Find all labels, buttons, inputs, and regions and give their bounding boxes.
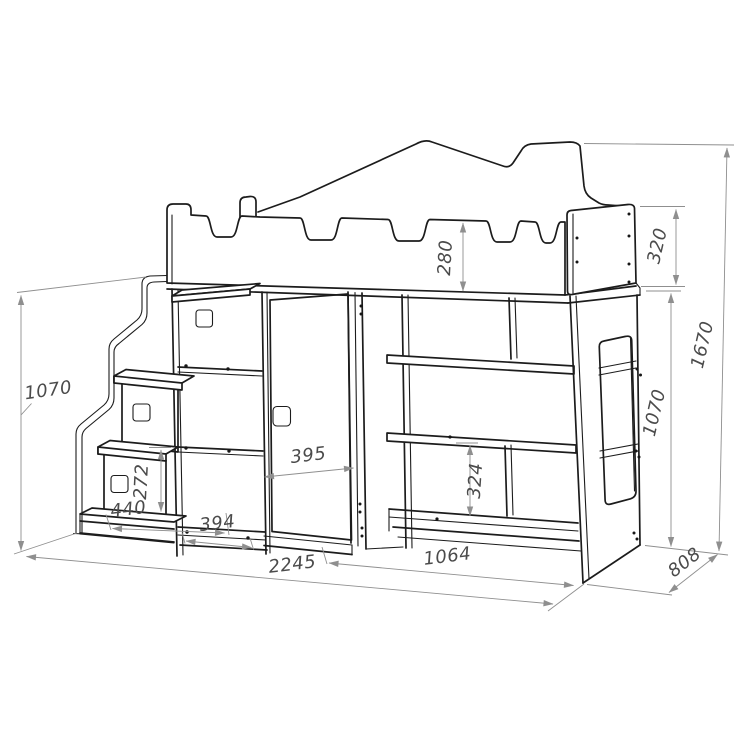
dim-cabinet-width: 394 [198, 511, 236, 536]
shelf-divider-top [509, 298, 511, 359]
dim-shelf-opening-height: 324 [464, 462, 487, 499]
stair-handrail [74, 276, 168, 535]
castle-guard-rail [167, 204, 565, 295]
staircase [80, 284, 260, 544]
shelf-upper [387, 355, 574, 374]
dim-drawer-front-height: 272 [130, 463, 153, 500]
dim-end-panel-height: 320 [643, 226, 672, 266]
bunk-end-panel [567, 204, 636, 294]
drawing-canvas: 280 320 1670 1070 1070 2245 1064 808 440… [0, 0, 750, 750]
drawer-handle-bottom [111, 476, 128, 493]
dim-ladder-height: 1070 [23, 377, 73, 404]
dim-total-width: 2245 [267, 551, 317, 578]
shelf-unit [387, 298, 581, 551]
wardrobe-door [264, 294, 352, 555]
dim-total-height: 1670 [687, 319, 718, 370]
right-side-panel [570, 295, 640, 583]
dim-door-width: 395 [289, 443, 327, 468]
side-panel-window [599, 336, 636, 504]
door-handle [273, 407, 291, 427]
loft-bed-drawing [74, 141, 643, 583]
shelf-divider-bottom [505, 446, 507, 516]
dim-step-depth: 440 [109, 497, 147, 522]
shelf-lower [387, 433, 576, 453]
dim-total-depth: 808 [664, 543, 705, 582]
drawer-handle-top [196, 310, 213, 327]
dim-rail-height: 280 [434, 239, 457, 276]
dim-side-height: 1070 [639, 387, 670, 438]
technical-drawing: 280 320 1670 1070 1070 2245 1064 808 440… [0, 0, 750, 750]
drawer-handle-middle [133, 404, 150, 421]
dim-shelf-unit-width: 1064 [422, 543, 472, 570]
roof-gable-outline [258, 141, 634, 212]
